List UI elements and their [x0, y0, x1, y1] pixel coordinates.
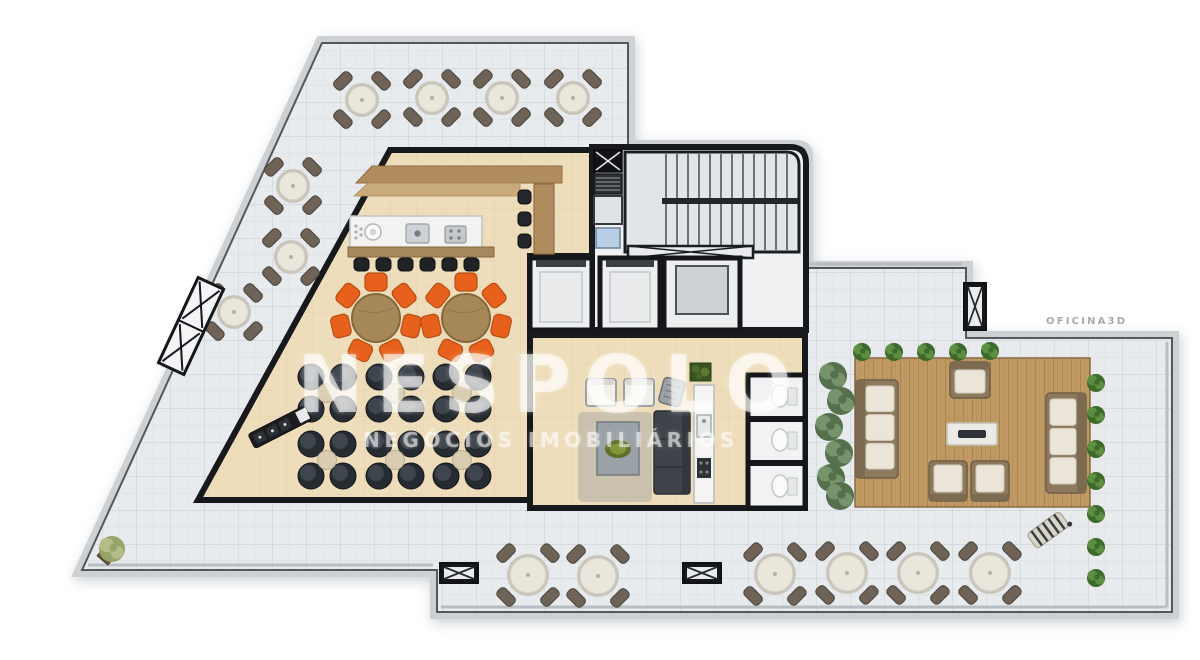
shrub	[1087, 569, 1105, 587]
shrub	[885, 343, 903, 361]
service-closet	[594, 196, 622, 224]
deck-sofa	[1046, 393, 1086, 493]
toilet	[772, 385, 797, 407]
machine-room	[664, 258, 740, 330]
vent-louver	[594, 174, 622, 194]
shrub	[949, 343, 967, 361]
planter-box	[690, 363, 711, 381]
bar-island	[348, 216, 494, 257]
edge-pillar	[964, 283, 986, 330]
bar-stool	[354, 258, 369, 271]
wall-counter	[356, 166, 562, 183]
bar-stool	[398, 258, 413, 271]
bar-stool	[442, 258, 457, 271]
deck-sofa	[856, 380, 898, 478]
shrub	[981, 342, 999, 360]
deck-armchair	[971, 461, 1009, 501]
counter-stool	[518, 212, 531, 226]
planter-shrub	[819, 362, 847, 390]
shrub	[1087, 406, 1105, 424]
toilet	[772, 429, 797, 451]
vent-grate	[594, 150, 622, 172]
counter-stool	[518, 190, 531, 204]
planter-shrub	[815, 413, 843, 441]
planter-shrub	[827, 387, 855, 415]
stair-handrail	[662, 198, 798, 204]
counter-stool	[518, 234, 531, 248]
planter-shrub	[826, 482, 854, 510]
shrub	[1087, 505, 1105, 523]
toilet	[772, 475, 797, 497]
floor-grate	[683, 563, 721, 583]
tall-counter	[534, 184, 554, 254]
orange-chair	[455, 273, 477, 291]
floor-grate	[440, 563, 478, 583]
shrub	[1087, 472, 1105, 490]
wet-point	[596, 228, 620, 248]
deck-armchair	[950, 362, 990, 398]
kitchen-sink	[697, 415, 711, 437]
coffee-table	[597, 422, 639, 475]
elevator-1	[530, 258, 592, 330]
bar-appliance	[445, 226, 466, 243]
shrub	[1087, 374, 1105, 392]
bar-stool	[420, 258, 435, 271]
orange-chair	[365, 273, 387, 291]
fire-table	[947, 423, 997, 445]
bar-stool	[464, 258, 479, 271]
floor-plan-canvas: NESPOLO NEGÓCIOS IMOBILIÁRIOS OFICINA3D	[0, 0, 1200, 660]
lounge-armchair	[586, 379, 616, 406]
floor-plan-rendering	[0, 0, 1200, 660]
lounge-sofa	[654, 411, 690, 494]
lounge-armchair	[624, 379, 654, 406]
shrub	[1087, 538, 1105, 556]
wall-shelf	[354, 183, 520, 196]
kitchen-cooktop	[697, 458, 711, 478]
studio-credit: OFICINA3D	[1046, 316, 1127, 327]
kitchen-counter	[694, 385, 714, 503]
planter-shrub	[825, 439, 853, 467]
shrub	[853, 343, 871, 361]
shrub	[917, 343, 935, 361]
shrub	[1087, 440, 1105, 458]
restrooms	[748, 375, 805, 508]
elevator-2	[600, 258, 660, 330]
deck-armchair	[929, 461, 967, 501]
bar-stool	[376, 258, 391, 271]
